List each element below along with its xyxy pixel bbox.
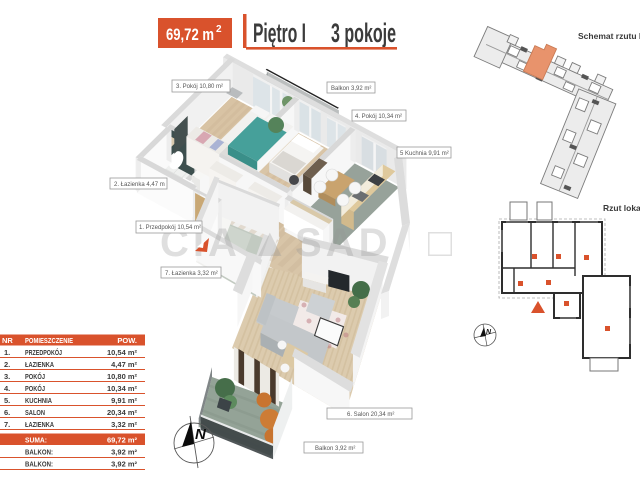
svg-text:69,72 m²: 69,72 m² [107,436,138,445]
svg-text:PRZEDPOKÓJ: PRZEDPOKÓJ [25,348,62,357]
svg-text:Balkon 3,92 m²: Balkon 3,92 m² [315,446,355,452]
svg-text:SAD: SAD [295,221,391,265]
svg-text:BALKON:: BALKON: [25,448,53,457]
svg-text:3,92 m²: 3,92 m² [111,448,137,457]
svg-text:10,34 m²: 10,34 m² [107,384,138,393]
svg-text:POKÓJ: POKÓJ [25,384,45,393]
svg-text:3. Pokój 10,80 m²: 3. Pokój 10,80 m² [176,84,223,90]
svg-text:7.: 7. [4,420,10,429]
svg-text:□: □ [428,221,452,265]
svg-text:NR: NR [2,336,13,345]
svg-text:3,92 m²: 3,92 m² [111,460,137,469]
svg-text:3.: 3. [4,372,10,381]
svg-text:N: N [195,426,207,443]
svg-text:BALKON:: BALKON: [25,460,53,469]
svg-text:2: 2 [216,24,222,35]
svg-text:6. Salon 20,34 m²: 6. Salon 20,34 m² [347,412,394,418]
svg-text:POW.: POW. [117,336,137,345]
svg-text:10,80 m²: 10,80 m² [107,372,138,381]
svg-text:4. Pokój 10,34 m²: 4. Pokój 10,34 m² [355,114,402,120]
svg-text:1. Przedpokój 10,54 m²: 1. Przedpokój 10,54 m² [139,225,201,231]
svg-text:69,72 m: 69,72 m [166,25,214,44]
svg-text:4,47 m²: 4,47 m² [111,360,137,369]
svg-text:ŁAZIENKA: ŁAZIENKA [25,420,54,429]
svg-text:Piętro I: Piętro I [253,18,306,48]
svg-text:3 pokoje: 3 pokoje [331,18,396,48]
svg-text:4.: 4. [4,384,10,393]
svg-text:Balkon 3,92 m²: Balkon 3,92 m² [331,86,371,92]
svg-text:3,32 m²: 3,32 m² [111,420,137,429]
svg-text:6.: 6. [4,408,10,417]
svg-text:KUCHNIA: KUCHNIA [25,396,52,405]
svg-text:POMIESZCZENIE: POMIESZCZENIE [25,336,73,345]
svg-text:Schemat rzutu bud: Schemat rzutu bud [578,31,640,41]
svg-text:2. Łazienka 4,47 m: 2. Łazienka 4,47 m [114,182,165,188]
svg-text:SUMA:: SUMA: [25,436,47,445]
svg-text:SALON: SALON [25,408,45,417]
svg-text:20,34 m²: 20,34 m² [107,408,138,417]
svg-text:10,54 m²: 10,54 m² [107,348,138,357]
svg-text:7. Łazienka 3,32 m²: 7. Łazienka 3,32 m² [165,271,218,277]
svg-text:1.: 1. [4,348,10,357]
svg-text:5 Kuchnia 9,91 m²: 5 Kuchnia 9,91 m² [400,151,449,157]
svg-text:POKÓJ: POKÓJ [25,372,45,381]
svg-text:ŁAZIENKA: ŁAZIENKA [25,360,54,369]
svg-text:2.: 2. [4,360,10,369]
svg-text:5.: 5. [4,396,10,405]
svg-text:▲: ▲ [250,221,290,265]
svg-text:9,91 m²: 9,91 m² [111,396,137,405]
svg-text:Rzut lokalu: Rzut lokalu [603,203,640,213]
